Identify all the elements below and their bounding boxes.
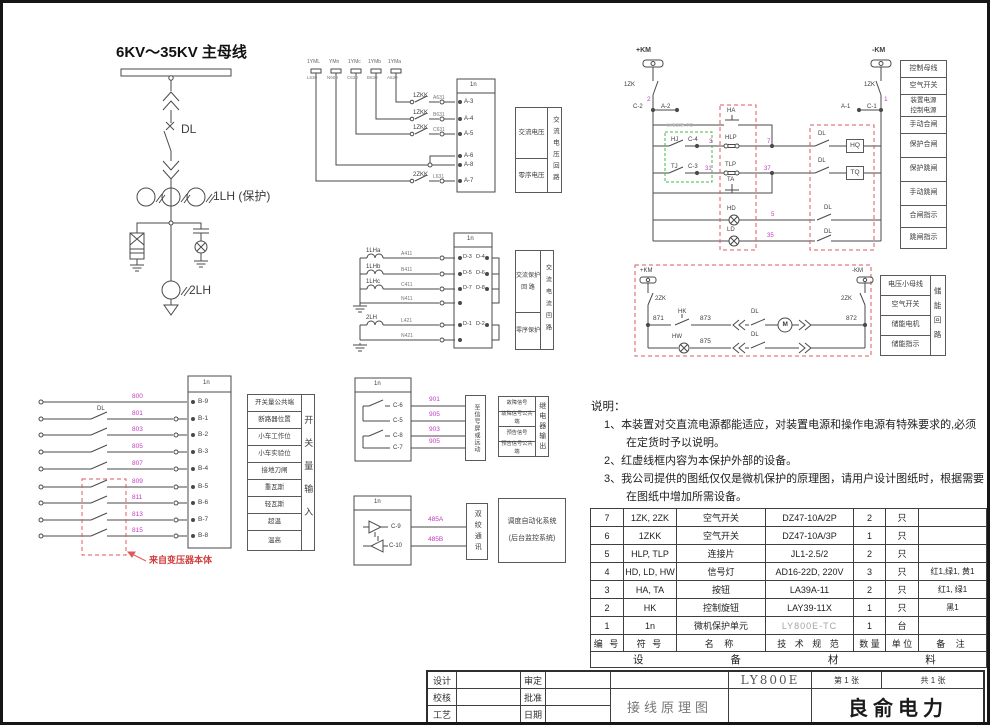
loop-label-voltage: 交流电压回路 (547, 107, 562, 193)
row-label: 手动跳闸 (900, 181, 947, 206)
header-cell: 名 称 (677, 635, 766, 652)
dest-label-signal: 至信号屏或远动 (465, 395, 486, 461)
wire-number: 873 (700, 316, 711, 323)
pt-name: 1YMc (348, 60, 361, 65)
cell: HK (624, 599, 677, 617)
header-cell: 符 号 (624, 635, 677, 652)
materials-row: 71ZK, 2ZK空气开关DZ47-10A/2P2只 (591, 509, 987, 527)
switch-label: 1ZKK (413, 125, 428, 131)
terminal-label: D-6 (476, 271, 485, 277)
breaker-label: DL (181, 123, 196, 136)
motor-letter: M (783, 322, 788, 329)
wire-number: A411 (401, 252, 412, 257)
terminal-label: A-3 (464, 99, 473, 105)
cell: 只 (886, 509, 919, 527)
terminal-label: A-5 (464, 131, 473, 137)
pos-bus-label: +KM (640, 268, 653, 274)
terminal-label: C-7 (393, 445, 403, 451)
cell: 5 (591, 545, 624, 563)
row-label: 手动合闸 (900, 116, 947, 134)
spare-cell (729, 689, 812, 723)
notes-line: 3、我公司提供的图纸仅仅是微机保护的原理图，请用户设计图纸时，根据需要 (604, 474, 984, 486)
materials-row: 11n微机保护单元LY800E-TC1台 (591, 617, 987, 635)
wire-number: 801 (132, 411, 143, 418)
notes-line: 在图纸中增加所需设备。 (626, 492, 747, 504)
busbar-symbol (121, 69, 231, 80)
button-label-ta: TA (727, 177, 734, 183)
wire-number: 803 (132, 427, 143, 434)
cell (919, 509, 987, 527)
terminal-label: B-9 (198, 399, 208, 406)
input-label: 重瓦斯 (247, 479, 302, 497)
function-box-ac-protection: 交流保护 回 路 (515, 250, 541, 313)
wire-number: B631 (433, 113, 445, 118)
row-label: 跳闸指示 (900, 227, 947, 249)
external-note: 来自变压器本体 (149, 556, 212, 565)
row-label: 装置电源 控制电源 (900, 94, 947, 117)
function-box-ac-voltage: 交流电压 (515, 107, 548, 159)
lamp-label-ld: LD (727, 227, 735, 233)
contact-label-dl: DL (818, 158, 826, 164)
cell: 1 (854, 617, 886, 635)
coil-box-tq: TQ (846, 166, 864, 180)
terminal-label: A-4 (464, 116, 473, 122)
unit-label: 1n (470, 82, 477, 88)
breaker-zk-label: 1ZK (864, 82, 875, 88)
cell: 3 (591, 581, 624, 599)
contact-label-dl: DL (818, 131, 826, 137)
model-label: LY800E (729, 672, 812, 689)
company-name: 良俞电力 (812, 689, 984, 723)
cell: 红1, 绿1 (919, 581, 987, 599)
materials-row: 3HA, TA按钮LA39A-112只红1, 绿1 (591, 581, 987, 599)
loop-label-storage: 储能回路 (930, 275, 946, 356)
link-label-hlp: HLP (725, 135, 737, 141)
terminal-label: C-6 (393, 403, 403, 409)
cell: 2 (854, 545, 886, 563)
terminal-label: A-2 (661, 104, 670, 110)
field-design-value (457, 672, 521, 689)
cell: 按钮 (677, 581, 766, 599)
cell: 1ZK, 2ZK (624, 509, 677, 527)
terminal-label: B-8 (198, 533, 208, 540)
breaker-contact-label: DL (97, 406, 105, 412)
cell: 红1,绿1, 黄1 (919, 563, 987, 581)
row-label: 保护合闸 (900, 133, 947, 158)
wire-number: 871 (653, 316, 664, 323)
switch-label: 1ZKK (413, 110, 428, 116)
button-label-ha: HA (727, 108, 735, 114)
breaker-dl-symbol (163, 80, 179, 281)
pt-wire: N600 (327, 76, 338, 81)
notes-line: 在定货时予以说明。 (626, 438, 725, 450)
wire-number: L631 (433, 175, 444, 180)
drawing-title: 接线原理图 (611, 689, 729, 723)
wire-number: 7 (767, 139, 770, 145)
materials-table: 71ZK, 2ZK空气开关DZ47-10A/2P2只 61ZKK空气开关DZ47… (590, 508, 987, 668)
materials-row: 4HD, LD, HW信号灯AD16-22D, 220V3只红1,绿1, 黄1 (591, 563, 987, 581)
cell: LY800E-TC (766, 617, 854, 635)
unit-label: 1n (374, 381, 381, 387)
dest-box-scada: 调度自动化系统 (后台监控系统) (498, 498, 566, 563)
terminal-label: B-4 (198, 466, 208, 473)
field-craft: 工艺 (428, 706, 457, 723)
spare-cell (611, 672, 729, 689)
knob-label-hk: HK (678, 309, 686, 315)
contact-label-dl: DL (824, 205, 832, 211)
relay-output-wiring (355, 378, 465, 461)
wire-number: 875 (700, 339, 711, 346)
terminal-label: B-7 (198, 517, 208, 524)
terminal-label: D-1 (463, 322, 472, 328)
row-label: 控制母线 (900, 60, 947, 78)
wire-number: 811 (132, 495, 142, 502)
row-label: 储能电机 (880, 315, 931, 336)
cell: LA39A-11 (766, 581, 854, 599)
wire-number: 485B (428, 537, 443, 544)
cell: JL1-2.5/2 (766, 545, 854, 563)
contact-label-tj: TJ (671, 164, 678, 170)
field-check: 校核 (428, 689, 457, 706)
ct-name: 2LH (366, 315, 377, 321)
header-cell: 备 注 (919, 635, 987, 652)
switch-label: 1ZKK (413, 93, 428, 99)
cell: AD16-22D, 220V (766, 563, 854, 581)
wire-number: N411 (401, 297, 413, 302)
cell: 1 (591, 617, 624, 635)
notes-title: 说明： (591, 401, 626, 413)
cell: 黑1 (919, 599, 987, 617)
cell (919, 617, 987, 635)
wire-number: L421 (401, 319, 412, 324)
materials-header-row: 编 号符 号名 称技 术 规 范数 量单 位备 注 (591, 635, 987, 652)
terminal-label: A-6 (464, 153, 473, 159)
unit-tag-label: LY800E-TC (667, 124, 693, 129)
neg-bus-label: -KM (852, 268, 863, 274)
wire-number: N421 (401, 334, 413, 339)
input-label: 小车工作位 (247, 428, 302, 446)
busbar-title: 6KV～35KV 主母线 (116, 45, 247, 61)
neg-bus-label: -KM (872, 47, 885, 54)
cell: HD, LD, HW (624, 563, 677, 581)
cell: 1n (624, 617, 677, 635)
ct-name: 1LHb (366, 264, 380, 270)
pos-bus-label: +KM (636, 47, 651, 54)
cell: 连接片 (677, 545, 766, 563)
cell: 3 (854, 563, 886, 581)
cell (919, 545, 987, 563)
row-label: 空气开关 (900, 77, 947, 95)
notes-line: 1、本装置对交直流电源都能适应，对装置电源和操作电源有特殊要求的,必须 (604, 420, 976, 432)
materials-row: 61ZKK空气开关DZ47-10A/3P1只 (591, 527, 987, 545)
cell: 只 (886, 581, 919, 599)
cell: 台 (886, 617, 919, 635)
sheet-number: 第 1 张 (812, 672, 882, 689)
header-cell: 技 术 规 范 (766, 635, 854, 652)
contact-label-hj: HJ (671, 137, 678, 143)
unit-label: 1n (374, 499, 381, 505)
row-label: 储能指示 (880, 335, 931, 356)
wire-number: 901 (429, 397, 440, 404)
cell: 2 (591, 599, 624, 617)
medium-label-comm: 双绞通讯 (466, 503, 488, 560)
wire-number: 805 (132, 444, 143, 451)
wire-number: 2 (647, 97, 651, 104)
cell: 控制旋钮 (677, 599, 766, 617)
wire-number: 800 (132, 394, 143, 401)
pt-name: 1YMb (368, 60, 381, 65)
cell: 1ZKK (624, 527, 677, 545)
terminal-label: C-10 (389, 543, 402, 549)
loop-label-current: 交流电流回路 (540, 250, 554, 350)
coil-box-hq: HQ (846, 139, 864, 153)
ct-name: 1LHa (366, 248, 380, 254)
group-label-digital: 开关量输入 (301, 394, 315, 551)
cell: DZ47-10A/2P (766, 509, 854, 527)
cell: 只 (886, 527, 919, 545)
input-label: 接地刀闸 (247, 462, 302, 480)
terminal-label: C-9 (391, 524, 401, 530)
terminal-label: D-7 (463, 286, 472, 292)
row-label: 保护跳闸 (900, 157, 947, 182)
wire-number: B411 (401, 268, 412, 273)
field-approve: 审定 (521, 672, 546, 689)
notes-line: 2、红虚线框内容为本保护外部的设备。 (604, 456, 797, 468)
cell: 空气开关 (677, 527, 766, 545)
field-date: 日期 (521, 706, 546, 723)
terminal-label: C-2 (633, 104, 643, 110)
group-label-relay: 继电器输出 (535, 396, 549, 457)
cell: 2 (854, 581, 886, 599)
cell: 1 (854, 599, 886, 617)
terminal-label: B-3 (198, 449, 208, 456)
control-circuit-wiring (643, 60, 891, 246)
terminal-label: B-5 (198, 484, 208, 491)
pt-name: 1YMa (388, 60, 401, 65)
terminal-label: A-7 (464, 178, 473, 184)
cell: 只 (886, 545, 919, 563)
schematic-sheet: 6KV～35KV 主母线 DL 1LH (保护) 2LH 1YML YMn 1Y… (0, 0, 990, 725)
pt-name: YMn (329, 60, 339, 65)
input-label: 轻瓦斯 (247, 496, 302, 514)
comm-wiring (354, 496, 466, 565)
wire-number: 815 (132, 528, 143, 535)
ct-2lh-symbol (162, 281, 190, 315)
field-design: 设计 (428, 672, 457, 689)
wire-number: A631 (433, 96, 445, 101)
output-label: 预告信号 (498, 426, 536, 442)
cell: 空气开关 (677, 509, 766, 527)
terminal-label: B-2 (198, 432, 208, 439)
ct-zero-label: 2LH (189, 284, 211, 297)
materials-row: 5HLP, TLP连接片JL1-2.5/22只 (591, 545, 987, 563)
cell: DZ47-10A/3P (766, 527, 854, 545)
wire-number: C631 (433, 128, 445, 133)
wire-number: 872 (846, 316, 857, 323)
cell: 6 (591, 527, 624, 545)
title-block: 设计 校核 工艺 审定 批准 日期 接线原理图 LY800E 第 1 张 共 1… (426, 670, 985, 725)
switch-label: 2ZKK (413, 172, 428, 178)
table-title: 设 备 材 料 表 (591, 652, 987, 668)
input-label: 温高 (247, 530, 302, 551)
output-label: 故障信号 (498, 396, 536, 412)
cell: 1 (854, 527, 886, 545)
terminal-label: D-2 (476, 322, 485, 328)
contact-label-dl: DL (824, 229, 832, 235)
field-ratify-value (546, 689, 611, 706)
terminal-label: D-5 (463, 271, 472, 277)
header-cell: 单 位 (886, 635, 919, 652)
terminal-label: D-3 (463, 255, 472, 261)
pt-name: 1YML (307, 60, 320, 65)
pt-wire: B630 (367, 76, 378, 81)
unit-label: 1n (203, 380, 210, 386)
wire-number: 3 (709, 139, 712, 145)
materials-footer-row: 设 备 材 料 表 (591, 652, 987, 668)
input-label: 开关量公共端 (247, 394, 302, 412)
terminal-label: A-1 (841, 104, 850, 110)
wire-number: 37 (764, 166, 771, 172)
wire-number: 485A (428, 517, 443, 524)
terminal-label: B-1 (198, 416, 208, 423)
function-box-zero-protection: 零序保护 (515, 312, 541, 350)
row-label: 空气开关 (880, 295, 931, 316)
ct-protection-label: 1LH (保护) (213, 190, 270, 203)
wire-number: 809 (132, 479, 143, 486)
cell: 只 (886, 563, 919, 581)
wire-number: 813 (132, 512, 143, 519)
cell: 7 (591, 509, 624, 527)
input-label: 超温 (247, 513, 302, 531)
materials-row: 2HK控制旋钮LAY39-11X1只黑1 (591, 599, 987, 617)
wire-number: 905 (429, 412, 440, 419)
terminal-label: C-1 (867, 104, 877, 110)
ct-1lh-symbol (137, 188, 215, 206)
ct-name: 1LHc (366, 279, 380, 285)
pt-wire: A630 (387, 76, 398, 81)
field-craft-value (457, 706, 521, 723)
field-ratify: 批准 (521, 689, 546, 706)
cell: 信号灯 (677, 563, 766, 581)
cell: LAY39-11X (766, 599, 854, 617)
row-label: 电压小母线 (880, 275, 931, 296)
breaker-zk-label: 2ZK (841, 296, 852, 302)
function-box-zero-voltage: 零序电压 (515, 158, 548, 193)
cell: 微机保护单元 (677, 617, 766, 635)
cell: HLP, TLP (624, 545, 677, 563)
breaker-zk-label: 1ZK (624, 82, 635, 88)
wire-number: 5 (771, 212, 774, 218)
terminal-label: D-8 (476, 286, 485, 292)
breaker-zk-label: 2ZK (655, 296, 666, 302)
wire-number: 35 (767, 233, 774, 239)
lamp-label-hd: HD (727, 206, 736, 212)
pt-wire: L630 (307, 76, 317, 81)
pt-wire: C630 (347, 76, 358, 81)
sheet-total: 共 1 张 (882, 672, 984, 689)
capacitor-lamp-symbol (173, 223, 209, 267)
cell: 2 (854, 509, 886, 527)
header-cell: 数 量 (854, 635, 886, 652)
wire-number: 807 (132, 461, 143, 468)
input-label: 小车实验位 (247, 445, 302, 463)
header-cell: 编 号 (591, 635, 624, 652)
row-label: 合闸指示 (900, 205, 947, 228)
terminal-label: C-3 (688, 164, 698, 170)
wire-number: 1 (884, 97, 888, 104)
lamp-label-hw: HW (672, 334, 682, 340)
cell (919, 527, 987, 545)
wire-number: 903 (429, 427, 440, 434)
unit-label: 1n (467, 236, 474, 242)
wire-number: C411 (401, 283, 413, 288)
terminal-label: B-6 (198, 500, 208, 507)
output-label: 预告信号公共端 (498, 441, 536, 457)
terminal-label: C-5 (393, 418, 403, 424)
contact-label-dl: DL (751, 332, 759, 338)
input-label: 断路器位置 (247, 411, 302, 429)
field-date-value (546, 706, 611, 723)
field-check-value (457, 689, 521, 706)
output-label: 故障信号公共端 (498, 411, 536, 427)
arrester-symbol (130, 221, 173, 271)
terminal-label: C-4 (688, 137, 698, 143)
field-approve-value (546, 672, 611, 689)
wire-number: 31 (705, 166, 712, 172)
link-label-tlp: TLP (725, 162, 736, 168)
terminal-label: C-8 (393, 433, 403, 439)
wire-number: 905 (429, 439, 440, 446)
cell: HA, TA (624, 581, 677, 599)
terminal-label: A-8 (464, 162, 473, 168)
cell: 只 (886, 599, 919, 617)
contact-label-dl: DL (751, 309, 759, 315)
terminal-label: D-4 (476, 255, 485, 261)
cell: 4 (591, 563, 624, 581)
